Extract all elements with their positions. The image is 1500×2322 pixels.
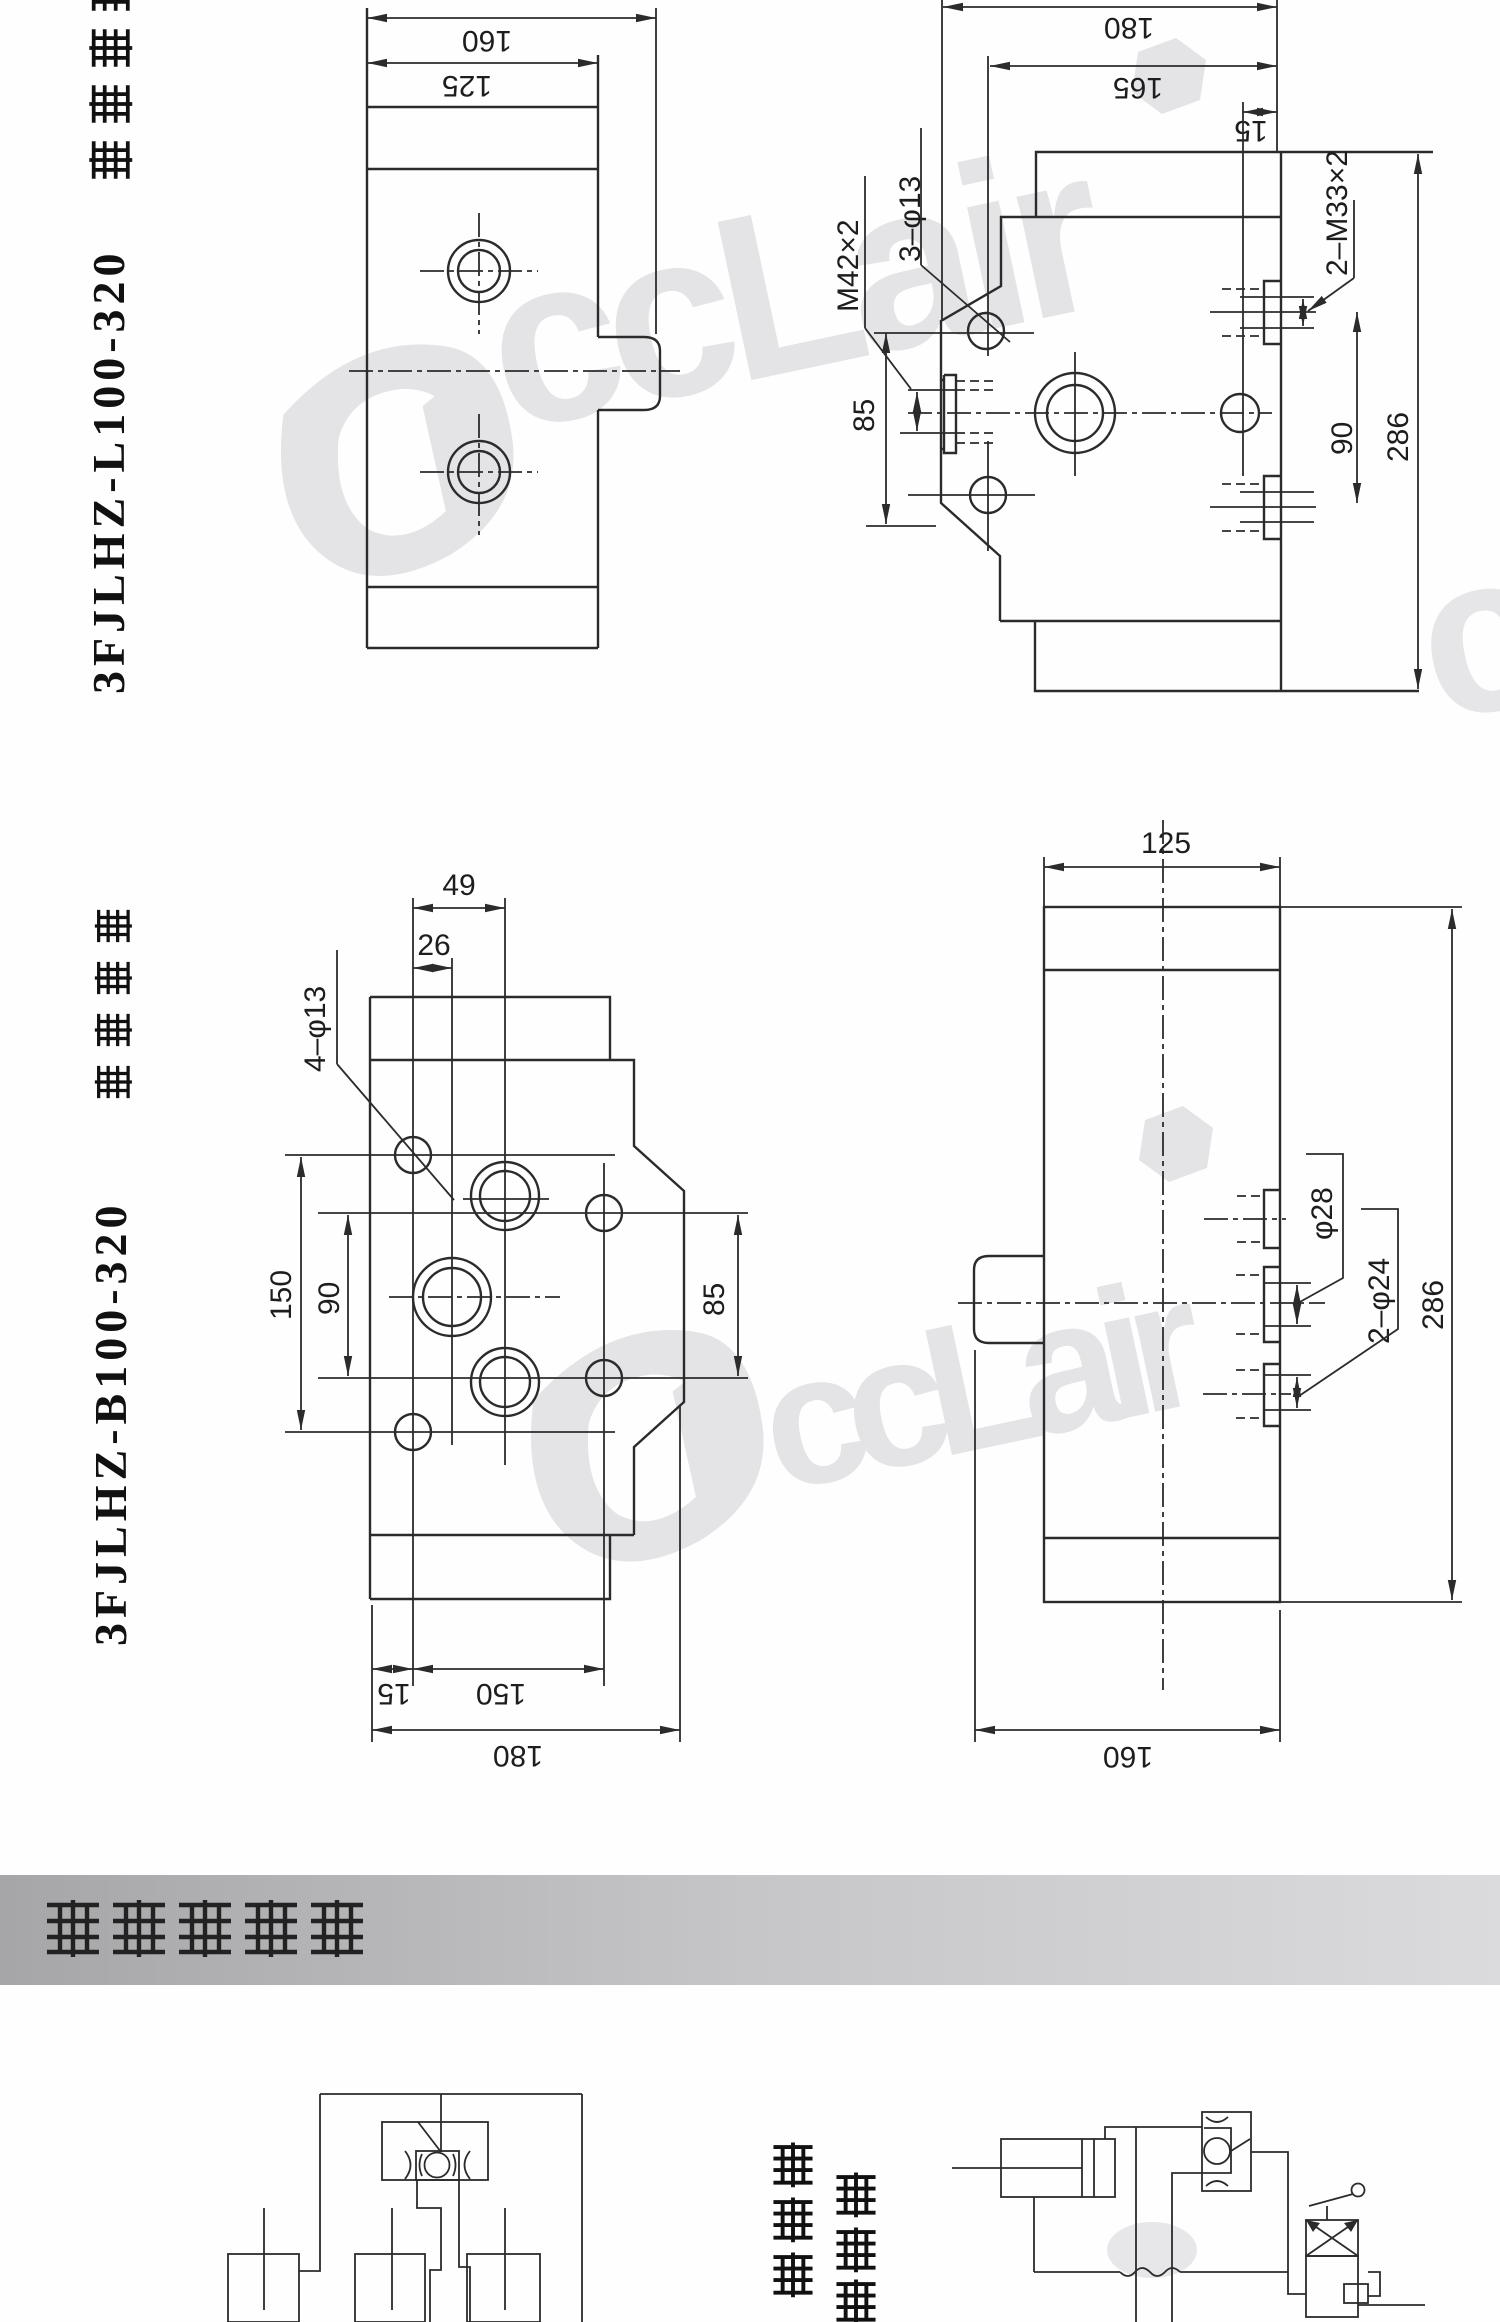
svg-text:165: 165: [1113, 71, 1163, 104]
svg-text:286: 286: [1417, 1280, 1450, 1330]
svg-text:M42×2: M42×2: [832, 219, 865, 312]
svg-text:286: 286: [1382, 412, 1415, 462]
svg-text:85: 85: [698, 1283, 731, 1316]
svg-text:4–φ13: 4–φ13: [299, 986, 332, 1072]
svg-text:2–φ24: 2–φ24: [1363, 1258, 1396, 1344]
svg-text:3FJLHZ-L100-320: 3FJLHZ-L100-320: [83, 248, 134, 694]
svg-text:125: 125: [442, 69, 492, 102]
svg-text:49: 49: [442, 869, 475, 902]
svg-text:180: 180: [1104, 11, 1154, 44]
svg-text:15: 15: [1234, 114, 1267, 147]
svg-text:3–φ13: 3–φ13: [894, 176, 927, 262]
svg-text:160: 160: [462, 24, 512, 57]
svg-text:125: 125: [1141, 827, 1191, 860]
svg-text:150: 150: [265, 1270, 298, 1320]
svg-text:3FJLHZ-B100-320: 3FJLHZ-B100-320: [85, 1200, 136, 1646]
svg-text:160: 160: [1103, 1740, 1153, 1773]
svg-text:85: 85: [848, 399, 881, 432]
svg-text:90: 90: [313, 1282, 346, 1315]
svg-text:90: 90: [1326, 422, 1359, 455]
svg-text:15: 15: [377, 1677, 410, 1710]
svg-text:φ28: φ28: [1306, 1187, 1339, 1240]
svg-text:2–M33×2: 2–M33×2: [1321, 150, 1354, 276]
svg-text:150: 150: [476, 1677, 526, 1710]
svg-text:26: 26: [417, 929, 450, 962]
svg-text:180: 180: [493, 1739, 543, 1772]
